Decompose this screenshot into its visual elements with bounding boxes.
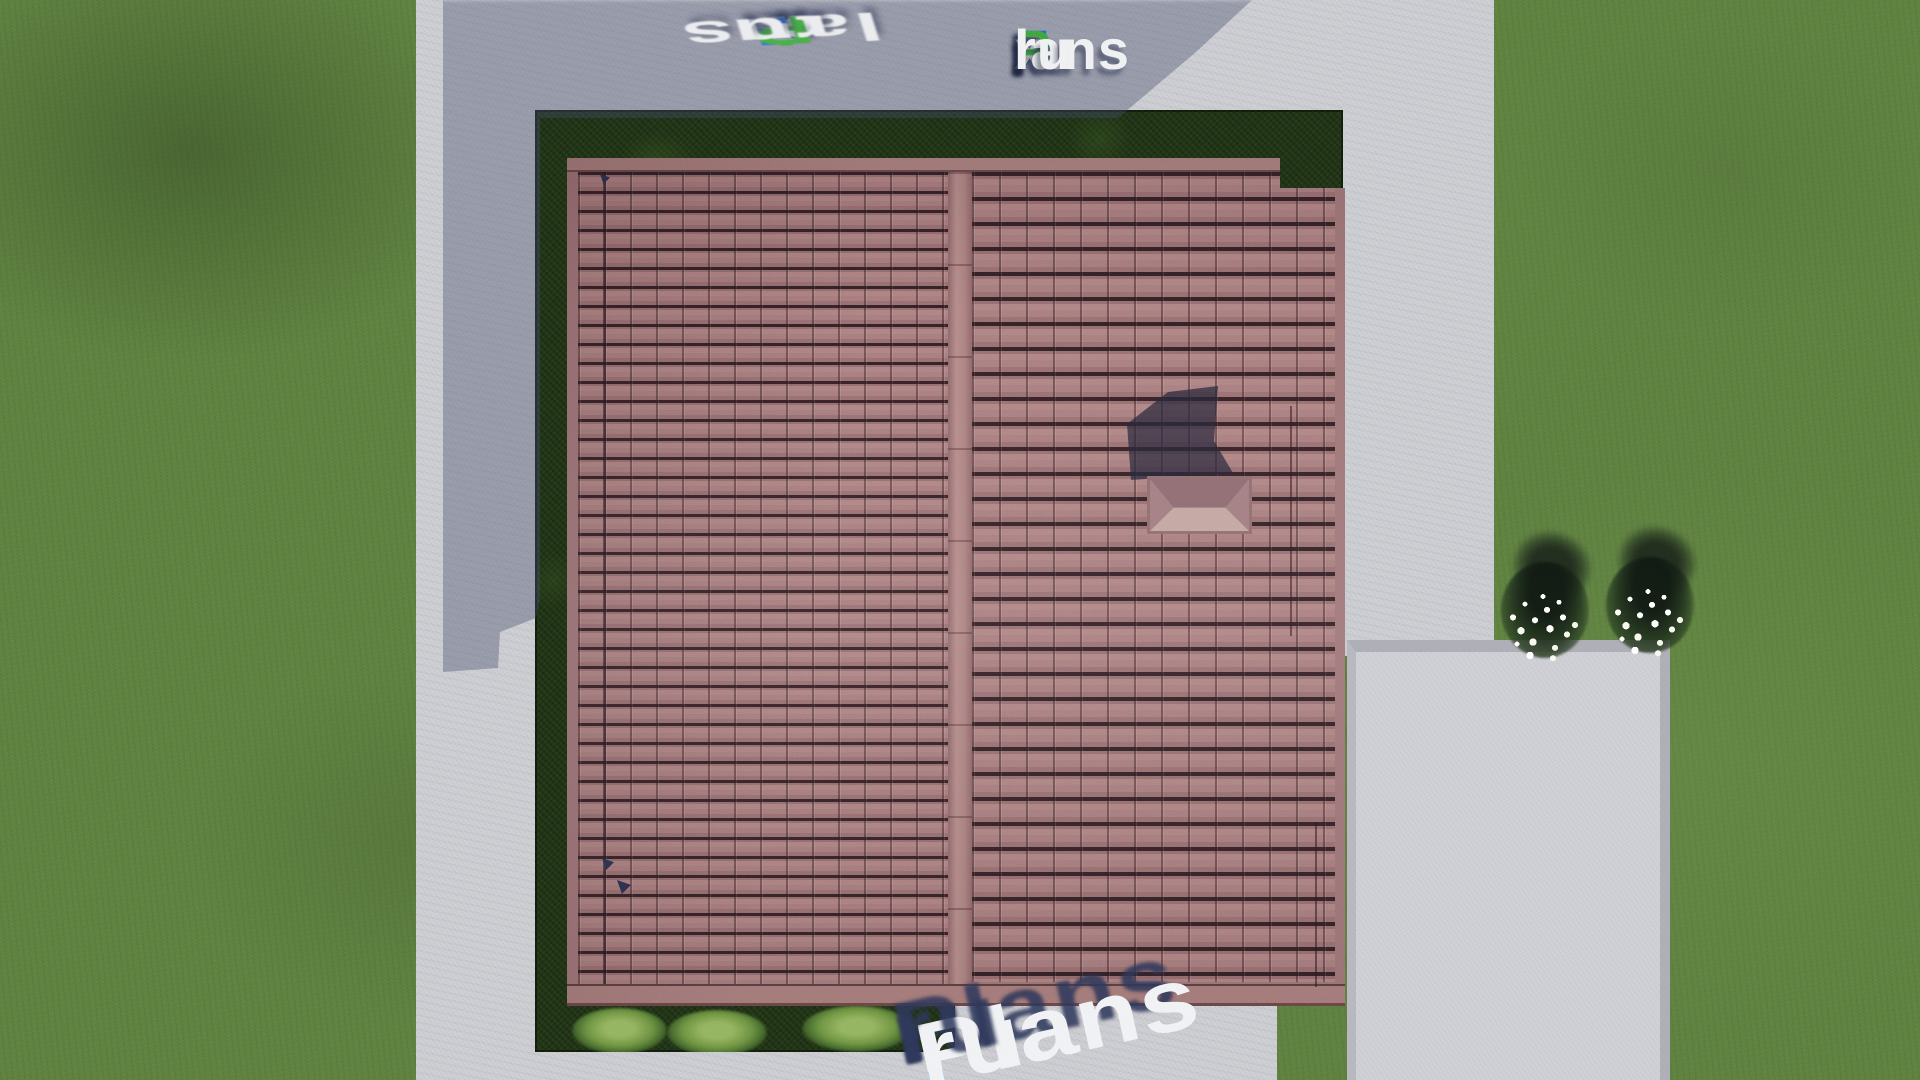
walkway-right: [1343, 0, 1494, 656]
tiled-roof: [567, 158, 1345, 1006]
patio-terrace: [1347, 640, 1670, 1080]
roof-shading-overlay: [567, 158, 1345, 1006]
flower-bush: [1495, 538, 1595, 663]
walkway-left: [416, 0, 540, 1080]
garden-bush: [667, 1010, 767, 1056]
flower-bush: [1600, 533, 1700, 658]
white-flowers: [1600, 563, 1700, 658]
walkway-bottom-left: [416, 1051, 955, 1080]
aerial-house-render: FixPlans.ru Plans.ru FixPlans.ru: [0, 0, 1920, 1080]
white-flowers: [1495, 568, 1595, 663]
garden-bush: [572, 1008, 667, 1054]
garden-bush: [802, 1006, 912, 1052]
